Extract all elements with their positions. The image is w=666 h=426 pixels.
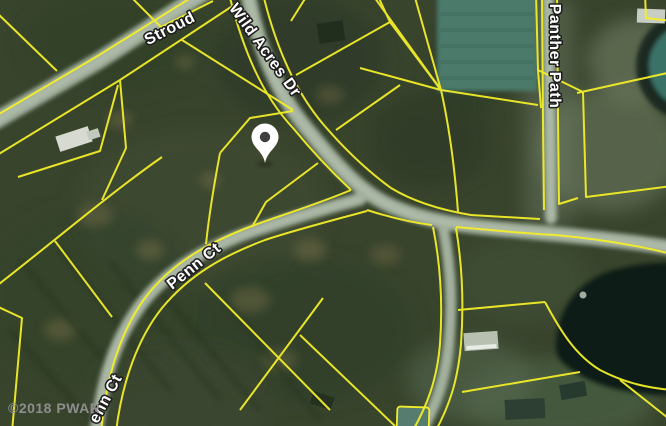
cleared-field [437,0,537,91]
street-label-panther-path: Panther Path [546,4,563,109]
copyright-watermark: ©2018 PWAR [8,400,100,416]
map-viewport[interactable]: Stroud Wild Acres Dr Panther Path Penn C… [0,0,666,426]
